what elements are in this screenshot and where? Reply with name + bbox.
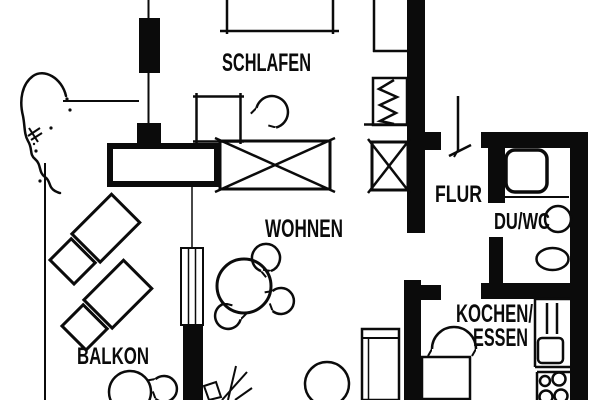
radiator xyxy=(364,78,408,125)
room-label-duwc: DU/WC xyxy=(494,208,550,234)
wardrobe-top xyxy=(373,0,408,52)
wall-main-upper xyxy=(407,0,425,233)
shower-tray xyxy=(506,150,547,192)
planter-box xyxy=(110,146,217,184)
room-label-kochen-line2: ESSEN xyxy=(473,324,528,352)
wall-main-upper-stub xyxy=(424,132,441,150)
room-label-wohnen: WOHNEN xyxy=(265,215,343,243)
kitchen-sink xyxy=(538,338,563,363)
wall-main-lower xyxy=(404,280,421,400)
toilet xyxy=(537,248,569,270)
bed xyxy=(220,0,339,34)
kitchen-door-arc xyxy=(432,327,476,349)
room-label-schlafen: SCHLAFEN xyxy=(222,49,311,77)
wall-right-exterior xyxy=(570,132,588,400)
window-x-box xyxy=(215,138,335,192)
plant-sketch xyxy=(204,366,252,400)
sideboard xyxy=(362,329,399,400)
dining-table-round xyxy=(305,362,349,400)
living-chair-arcs xyxy=(215,244,294,329)
kitchen-counter xyxy=(535,299,570,400)
wall-main-lower-stub xyxy=(421,285,441,300)
living-table xyxy=(217,259,271,313)
wall-duwc-bottom xyxy=(481,283,572,299)
wall-duwc-left-upper xyxy=(488,133,505,203)
room-label-flur: FLUR xyxy=(435,181,482,208)
nightstand xyxy=(193,93,244,144)
section-mark xyxy=(137,0,161,143)
floor-plan: SCHLAFEN WOHNEN BALKON FLUR DU/WC KOCHEN… xyxy=(0,0,600,400)
door-swing-bedroom xyxy=(257,96,288,127)
room-label-balkon: BALKON xyxy=(77,343,149,370)
floor-plan-drawing: SCHLAFEN WOHNEN BALKON FLUR DU/WC KOCHEN… xyxy=(0,0,600,400)
entrance-arrow xyxy=(449,96,471,156)
balcony-window xyxy=(181,187,203,325)
balcony-chair-arc xyxy=(156,376,177,400)
balcony-table xyxy=(109,371,151,400)
wall-duwc-left-lower xyxy=(489,237,503,283)
stove-burners xyxy=(540,373,568,400)
kitchen-table xyxy=(422,357,470,399)
closet-x-box xyxy=(368,139,410,193)
wall-balcony-lower xyxy=(183,325,203,400)
tree-sketch xyxy=(21,73,71,193)
